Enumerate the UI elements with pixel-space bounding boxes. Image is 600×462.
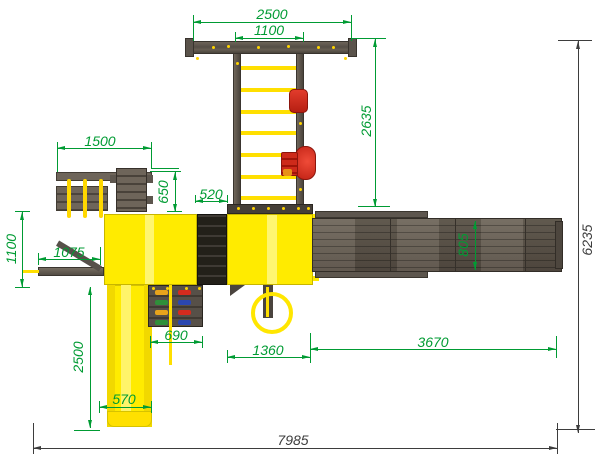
swing-beam-top-rail	[315, 211, 428, 218]
climbing-hold-blue	[178, 300, 191, 305]
ext-line	[151, 142, 152, 169]
ladder-rail-right	[296, 53, 304, 206]
bolt	[237, 207, 240, 210]
dim-label-overall-width: 7985	[263, 433, 323, 447]
slide-end-cap	[107, 411, 152, 427]
swing-beam-bottom-rail	[315, 271, 428, 278]
bolt	[212, 46, 215, 49]
platform-chamfer	[230, 285, 245, 296]
pergola-step-block	[116, 168, 147, 212]
dim-label-overall-depth: 6235	[580, 210, 594, 270]
ext-line	[15, 287, 30, 288]
bolt	[257, 46, 260, 49]
ext-line	[352, 38, 386, 39]
dim-line-slide-length	[90, 287, 91, 428]
swing-beam-end-cap	[555, 221, 563, 269]
ext-line	[303, 32, 304, 42]
bolt	[236, 62, 239, 65]
pergola-tab	[147, 175, 153, 183]
climbing-wall-center-line	[169, 285, 172, 365]
dim-line-ladder-length	[375, 39, 376, 207]
dim-label-left-beam: 1075	[39, 245, 99, 259]
dim-line-left-module-depth	[175, 172, 176, 212]
bolt	[185, 287, 188, 290]
climbing-hold-green	[155, 300, 168, 305]
bridge-walkway	[197, 214, 227, 285]
ladder-rung	[241, 131, 296, 135]
dim-label-swing-beam-width: 805	[456, 215, 470, 275]
bolt	[317, 46, 320, 49]
dim-line-slide-width	[99, 407, 151, 408]
climbing-hold-red	[178, 290, 191, 295]
climbing-hold-green	[155, 320, 168, 325]
climbing-hold-red	[178, 310, 191, 315]
bolt	[332, 46, 335, 49]
dim-label-climb-wall: 690	[146, 328, 206, 342]
climbing-hold-yellow	[155, 310, 168, 315]
dim-label-left-offset: 1100	[4, 219, 18, 279]
left-beam-yellow-tip	[22, 270, 39, 273]
ext-line	[557, 423, 558, 454]
center-platform-highlight	[267, 215, 277, 284]
bolt	[267, 207, 270, 210]
ladder-rung	[241, 196, 296, 200]
dim-label-slide-width: 570	[94, 392, 154, 406]
ext-line	[556, 429, 595, 430]
ext-line	[556, 336, 557, 358]
bolt	[307, 207, 310, 210]
climbing-hold-blue	[178, 320, 191, 325]
ext-line	[74, 430, 100, 431]
swing-beam-seam	[390, 219, 391, 271]
bolt	[227, 45, 230, 48]
ext-line	[358, 206, 390, 207]
bolt	[297, 207, 300, 210]
ladder-rung	[241, 110, 296, 114]
ext-line	[100, 247, 101, 265]
ext-line	[227, 350, 228, 363]
dim-label-top-beam: 2500	[242, 7, 302, 21]
top-crossbeam-endcap-right	[348, 38, 357, 57]
ext-line	[15, 211, 30, 212]
ext-line	[57, 142, 58, 172]
red-accessory-accent	[283, 169, 292, 176]
bolt	[299, 122, 302, 125]
pergola-yellow-post	[83, 179, 87, 218]
bolt	[196, 57, 199, 60]
ext-line	[33, 423, 34, 454]
red-accessory-large-disc	[295, 146, 316, 180]
ext-line	[558, 40, 592, 41]
dim-label-left-module-depth: 650	[156, 162, 170, 222]
dim-line-overall-width	[33, 448, 557, 449]
dim-line-swing-beam-width	[475, 221, 476, 270]
ext-line	[193, 15, 194, 41]
dim-label-bridge: 520	[181, 187, 241, 201]
bolt	[299, 188, 302, 191]
dim-line-ladder-span	[235, 38, 303, 39]
pergola-tab	[147, 196, 153, 204]
dim-label-ladder-length: 2635	[359, 91, 373, 151]
dim-label-left-module: 1500	[70, 134, 130, 148]
bolt	[287, 45, 290, 48]
bolt	[344, 57, 347, 60]
dim-label-pole-offset: 1360	[238, 343, 298, 357]
bolt	[252, 207, 255, 210]
swing-beam-seam	[525, 219, 526, 271]
ladder-rail-left	[233, 53, 241, 206]
climbing-hold-yellow	[155, 290, 168, 295]
pergola-yellow-post	[67, 179, 71, 218]
ladder-rung	[241, 88, 296, 92]
ladder-rung	[241, 66, 296, 70]
bolt	[166, 287, 169, 290]
bolt	[152, 287, 155, 290]
red-accessory-small	[289, 89, 308, 113]
dim-line-left-offset	[22, 212, 23, 287]
fire-pole-circle	[251, 292, 293, 334]
bolt	[282, 207, 285, 210]
pergola-yellow-post	[99, 179, 103, 218]
pergola-tab	[110, 175, 116, 183]
dim-label-swing-beam: 3670	[403, 335, 463, 349]
ext-line	[235, 32, 236, 42]
cad-canvas: 2500 1100 2635 1500 650 520 1100 1075 25…	[0, 0, 600, 462]
dim-label-slide-length: 2500	[71, 327, 85, 387]
left-platform-highlight	[145, 215, 154, 284]
bolt	[198, 287, 201, 290]
dim-label-ladder-span: 1100	[239, 23, 299, 37]
